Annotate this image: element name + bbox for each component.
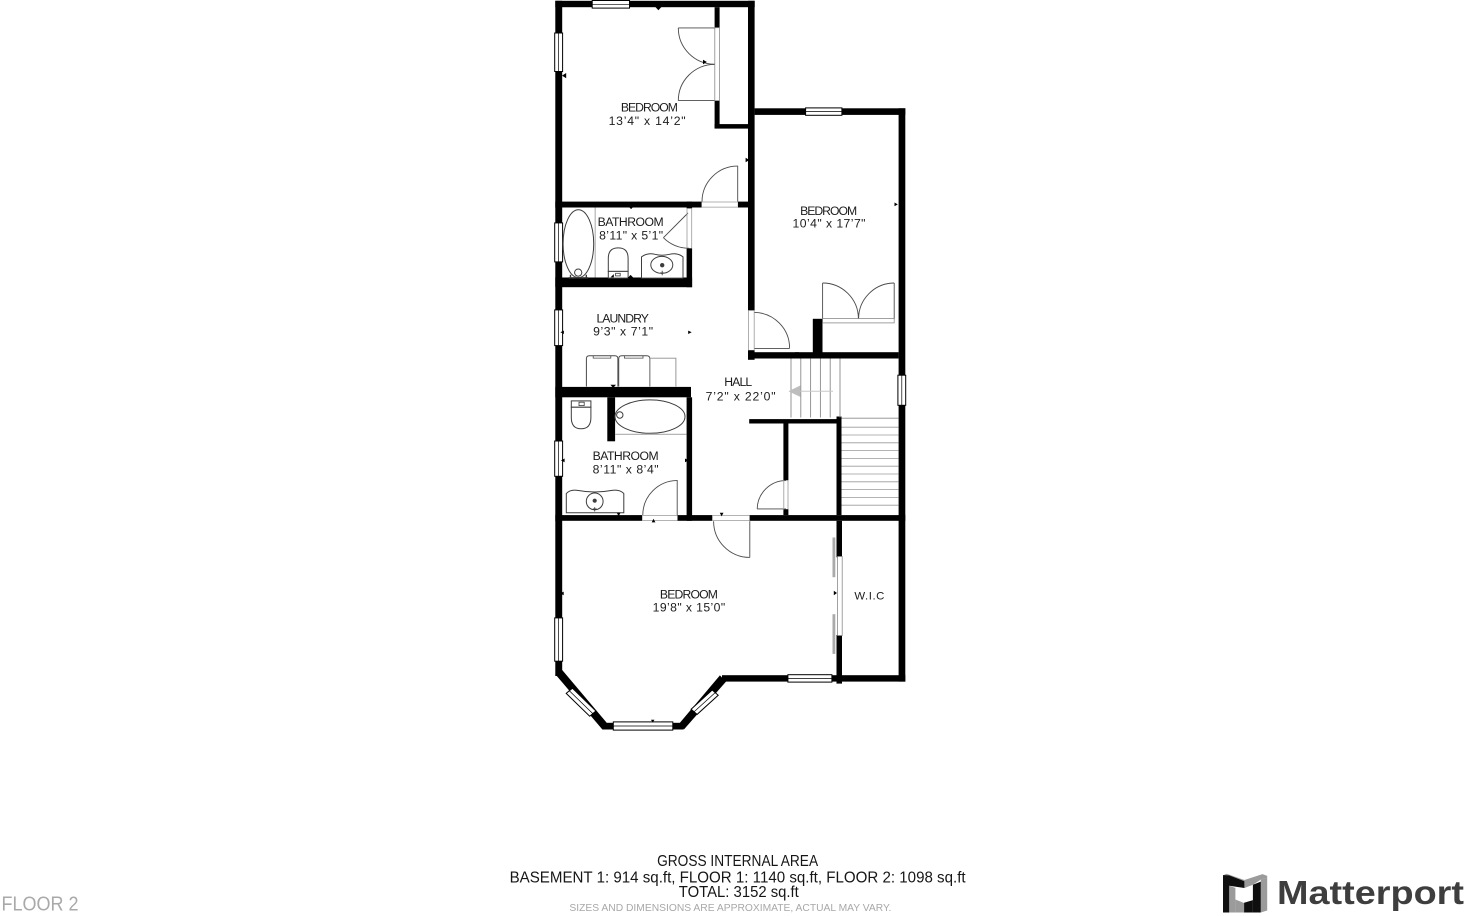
svg-text:9’3" x 7’1": 9’3" x 7’1" bbox=[593, 325, 653, 339]
svg-text:Matterport: Matterport bbox=[1277, 874, 1464, 911]
svg-text:13’4" x 14’2": 13’4" x 14’2" bbox=[609, 114, 686, 128]
svg-text:8’11" x 5’1": 8’11" x 5’1" bbox=[599, 228, 663, 242]
svg-text:7’2" x 22’0": 7’2" x 22’0" bbox=[706, 389, 776, 403]
svg-text:BEDROOM: BEDROOM bbox=[621, 101, 678, 115]
svg-text:FLOOR 2: FLOOR 2 bbox=[2, 893, 79, 916]
svg-text:BATHROOM: BATHROOM bbox=[598, 215, 664, 229]
svg-text:BEDROOM: BEDROOM bbox=[660, 588, 718, 602]
svg-text:SIZES AND DIMENSIONS ARE APPRO: SIZES AND DIMENSIONS ARE APPROXIMATE, AC… bbox=[569, 903, 891, 914]
svg-text:HALL: HALL bbox=[724, 375, 752, 389]
svg-text:19’8" x 15’0": 19’8" x 15’0" bbox=[653, 601, 726, 615]
svg-text:W.I.C: W.I.C bbox=[854, 590, 884, 602]
svg-text:8’11" x 8’4": 8’11" x 8’4" bbox=[593, 463, 659, 477]
svg-text:10’4" x 17’7": 10’4" x 17’7" bbox=[793, 217, 866, 231]
svg-text:LAUNDRY: LAUNDRY bbox=[596, 312, 649, 326]
svg-text:GROSS INTERNAL AREA: GROSS INTERNAL AREA bbox=[657, 853, 818, 870]
svg-text:TOTAL: 3152 sq.ft: TOTAL: 3152 sq.ft bbox=[679, 884, 800, 901]
svg-text:BATHROOM: BATHROOM bbox=[593, 449, 659, 463]
